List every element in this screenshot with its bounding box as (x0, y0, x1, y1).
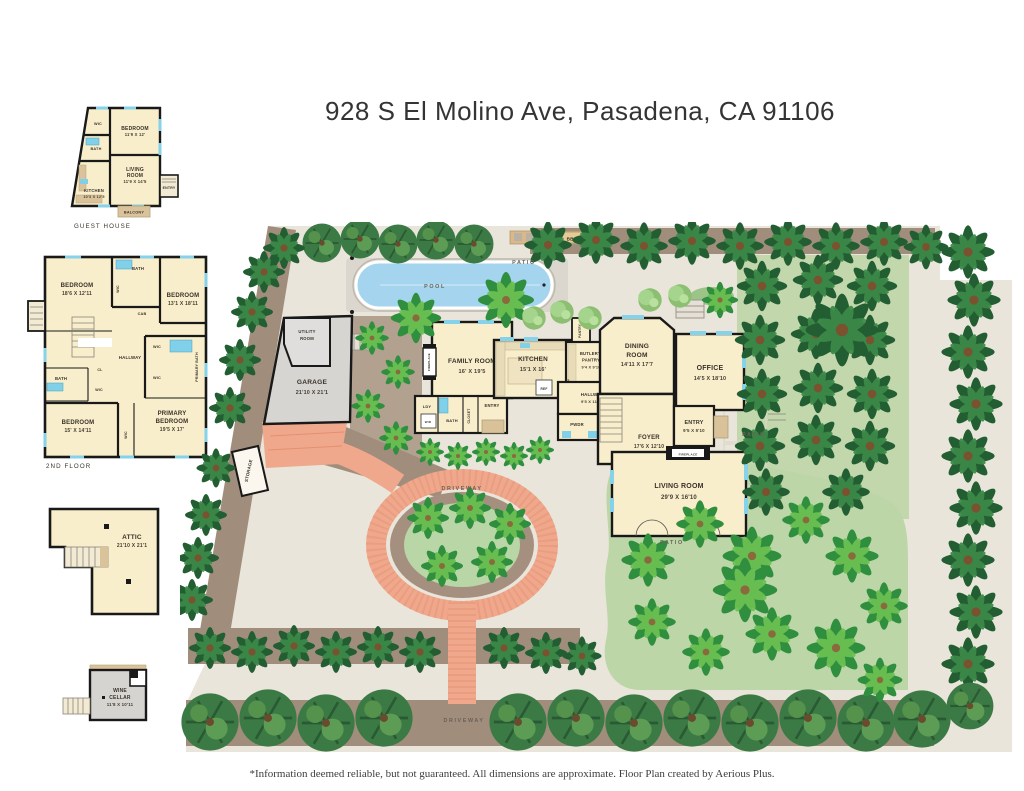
palm-tree-icon (782, 496, 830, 544)
bush-icon (550, 300, 573, 323)
attic-dim: 21'10 X 21'1 (117, 543, 147, 549)
annex-bath-label: BATH (446, 418, 458, 423)
patio-label-entry: PATIO (742, 432, 766, 438)
palm-tree-icon (941, 429, 994, 482)
palm-tree-icon (737, 261, 787, 311)
guest-kitchen-dim: 10'3 X 12'5 (83, 195, 104, 199)
utility-room-label-1: UTILITY (298, 329, 315, 334)
tree-icon (455, 225, 494, 264)
f2-bedroom1-dim: 18'6 X 12'11 (62, 291, 92, 297)
palm-tree-icon (735, 315, 785, 365)
floor-plan-page: 928 S El Molino Ave, Pasadena, CA 91106 … (0, 0, 1024, 791)
palm-tree-icon (483, 627, 525, 669)
page-title: 928 S El Molino Ave, Pasadena, CA 91106 (250, 96, 910, 127)
wine-dim: 11'8 X 10'11 (107, 702, 134, 707)
driveway-label-circle: DRIVEWAY (441, 486, 482, 492)
garage-label: GARAGE (297, 379, 328, 386)
palm-tree-icon (713, 558, 777, 622)
palm-tree-icon (526, 436, 554, 464)
tree-icon (417, 222, 456, 260)
palm-tree-icon (351, 389, 385, 423)
palm-tree-icon (745, 607, 798, 660)
palm-tree-icon (791, 415, 841, 465)
palm-tree-icon (379, 421, 413, 455)
palm-tree-icon (525, 632, 567, 674)
palm-tree-icon (562, 636, 601, 675)
guest-balcony-label: BALCONY (124, 211, 144, 215)
guest-house-entry: ENTRY (160, 175, 178, 197)
guest-house-caption: GUEST HOUSE (74, 223, 131, 230)
office-dim: 14'5 X 18'10 (694, 376, 727, 382)
f2-bedroom1-label: BEDROOM (61, 283, 94, 289)
palm-tree-icon (825, 529, 878, 582)
butlers-label-2: PANTRY (582, 358, 600, 363)
palm-tree-icon (219, 339, 261, 381)
palm-tree-icon (682, 628, 730, 676)
tree-icon (239, 689, 296, 746)
f2-wic-low-label: WIC (153, 376, 161, 380)
palm-tree-icon (949, 481, 1002, 534)
palm-tree-icon (355, 321, 389, 355)
closet-label: CLOSET (467, 408, 471, 424)
dining-label-2: ROOM (626, 352, 648, 359)
palm-tree-icon (858, 658, 903, 703)
office: OFFICE 14'5 X 18'10 (676, 334, 744, 410)
palm-tree-icon (793, 255, 843, 305)
garage-dim: 21'10 X 21'1 (296, 390, 329, 396)
palm-tree-icon (243, 251, 285, 293)
ref-label: REF (541, 387, 548, 391)
palm-tree-icon (231, 291, 273, 333)
palm-tree-icon (315, 631, 357, 673)
palm-tree-icon (421, 545, 463, 587)
palm-tree-icon (793, 363, 843, 413)
dining-room: DINING ROOM 14'11 X 17'7 (600, 318, 674, 394)
service-annex: W/D LDY BATH CLOSET ENTRY (415, 396, 507, 433)
palm-tree-icon (620, 222, 668, 270)
wine-label-1: WINE (113, 688, 127, 694)
disclaimer-text: *Information deemed reliable, but not gu… (0, 768, 1024, 780)
family-entry-label: ENTRY (484, 403, 499, 408)
palm-tree-icon (904, 225, 949, 270)
palm-tree-icon (416, 438, 444, 466)
f2-cab-label: CAB (138, 312, 147, 316)
dining-label-1: DINING (625, 343, 649, 350)
guest-wic-label: WIC (94, 122, 102, 126)
palm-tree-icon (845, 421, 895, 471)
attic-label: ATTIC (122, 534, 142, 541)
tree-icon (489, 693, 546, 750)
f2-wic-left-label: WIC (95, 388, 103, 392)
guest-kitchen-label: KITCHEN (84, 188, 104, 193)
palm-tree-icon (947, 273, 1000, 326)
palm-tree-icon (185, 494, 227, 536)
attic-plan: ATTIC 21'10 X 21'1 (40, 494, 180, 624)
palm-tree-icon (399, 631, 441, 673)
palm-tree-icon (489, 503, 531, 545)
family-room-dim: 16' X 19'5 (458, 369, 485, 375)
palm-tree-icon (735, 421, 785, 471)
f2-cl-label: CL (97, 368, 103, 372)
palm-tree-icon (822, 468, 870, 516)
tree-icon (947, 683, 994, 730)
guest-house-plan: WIC BEDROOM 11'9 X 12' BATH LIVING ROOM … (58, 103, 198, 235)
butlers-dim: 9'4 X 9'10 (581, 366, 600, 370)
guest-house-balcony: BALCONY (118, 206, 150, 217)
guest-bedroom-dim: 11'9 X 12' (125, 132, 146, 137)
palm-tree-icon (209, 387, 251, 429)
palm-tree-icon (742, 468, 790, 516)
palm-tree-icon (847, 369, 897, 419)
f2-bath-top-label: BATH (132, 266, 144, 271)
foyer-dim: 17'6 X 12'10 (634, 444, 664, 450)
dining-dim: 14'11 X 17'7 (621, 362, 653, 368)
palm-tree-icon (941, 225, 994, 278)
palm-tree-icon (806, 294, 879, 367)
palm-tree-icon (949, 377, 1002, 430)
palm-tree-icon (737, 369, 787, 419)
guest-living-dim: 11'9 X 14'5 (123, 179, 147, 184)
palm-tree-icon (391, 293, 441, 343)
tree-icon (303, 224, 342, 263)
palm-tree-icon (807, 619, 866, 678)
palm-tree-icon (444, 442, 472, 470)
pool-label: POOL (424, 284, 446, 290)
tree-icon (663, 689, 720, 746)
wine-cellar-room: WINE CELLAR 11'8 X 10'11 (63, 665, 146, 720)
guest-house-rooms: WIC BEDROOM 11'9 X 12' BATH LIVING ROOM … (72, 107, 162, 208)
tree-icon (837, 694, 894, 751)
f2-hallway-label: HALLWAY (119, 355, 141, 360)
bush-icon (638, 288, 661, 311)
guest-entry-label: ENTRY (163, 186, 176, 190)
utility-room-label-2: ROOM (300, 336, 314, 341)
bush-icon (668, 284, 691, 307)
living-room-label: LIVING ROOM (654, 483, 703, 490)
family-room-label: FAMILY ROOM (448, 358, 496, 365)
site-plan: BBQ UTILITY ROOM GARAGE 21'10 X 21'1 (180, 222, 1024, 767)
palm-tree-icon (628, 598, 676, 646)
palm-tree-icon (471, 541, 513, 583)
palm-tree-icon (860, 582, 908, 630)
wd-label: W/D (425, 420, 432, 424)
tree-icon (297, 694, 354, 751)
palm-tree-icon (941, 325, 994, 378)
palm-tree-icon (357, 626, 399, 668)
kitchen-label: KITCHEN (518, 356, 548, 363)
palm-tree-icon (941, 533, 994, 586)
tree-icon (605, 694, 662, 751)
palm-tree-icon (273, 625, 315, 667)
second-floor-caption: 2ND FLOOR (46, 463, 91, 470)
f2-wic-mid-label: WIC (153, 345, 161, 349)
palm-tree-icon (449, 487, 491, 529)
palm-tree-icon (847, 261, 897, 311)
living-fireplace-label: FIREPLACE (679, 453, 698, 457)
family-fireplace-label: FIREPLACE (427, 353, 431, 371)
f2-bath-left-label: BATH (55, 376, 67, 381)
patio-label-pool: PATIO (512, 260, 536, 266)
f2-wic-top-label: WIC (116, 285, 120, 293)
f2-wic-bottom-label: WIC (124, 431, 128, 439)
f2-bedroom3-dim: 15' X 14'11 (64, 428, 91, 434)
palm-tree-icon (196, 448, 235, 487)
tree-icon (181, 693, 238, 750)
tree-icon (779, 689, 836, 746)
attic-room: ATTIC 21'10 X 21'1 (50, 509, 158, 614)
palm-tree-icon (189, 627, 231, 669)
palm-tree-icon (472, 438, 500, 466)
tree-icon (379, 225, 418, 264)
wine-cellar-plan: WINE CELLAR 11'8 X 10'11 (58, 660, 183, 738)
tree-icon (893, 690, 950, 747)
entry2-dim: 9'5 X 5'10 (683, 428, 705, 433)
pwdr-label: PWDR (570, 422, 584, 427)
tree-icon (721, 694, 778, 751)
palm-tree-icon (949, 585, 1002, 638)
driveway-label-street: DRIVEWAY (443, 718, 484, 724)
wine-label-2: CELLAR (109, 695, 131, 701)
ldy-label: LDY (423, 404, 432, 409)
bush-icon (578, 306, 601, 329)
palm-tree-icon (716, 222, 764, 270)
f2-bedroom3-label: BEDROOM (62, 420, 95, 426)
patio-label-living: PATIO (660, 540, 684, 546)
foyer-label: FOYER (638, 435, 660, 441)
office-label: OFFICE (697, 365, 724, 372)
palm-tree-icon (407, 497, 449, 539)
living-room-dim: 29'9 X 16'10 (661, 495, 697, 501)
hall-cl-label: CL (566, 378, 570, 382)
entry2-label: ENTRY (684, 420, 703, 426)
palm-tree-icon (500, 442, 528, 470)
tree-icon (355, 689, 412, 746)
palm-tree-icon (381, 355, 415, 389)
bush-icon (522, 306, 545, 329)
guest-bath-label: BATH (90, 147, 101, 151)
palm-tree-icon (702, 282, 738, 318)
tree-icon (547, 689, 604, 746)
palm-tree-icon (941, 637, 994, 690)
kitchen-dim: 15'1 X 16' (520, 367, 546, 373)
palm-tree-icon (231, 631, 273, 673)
